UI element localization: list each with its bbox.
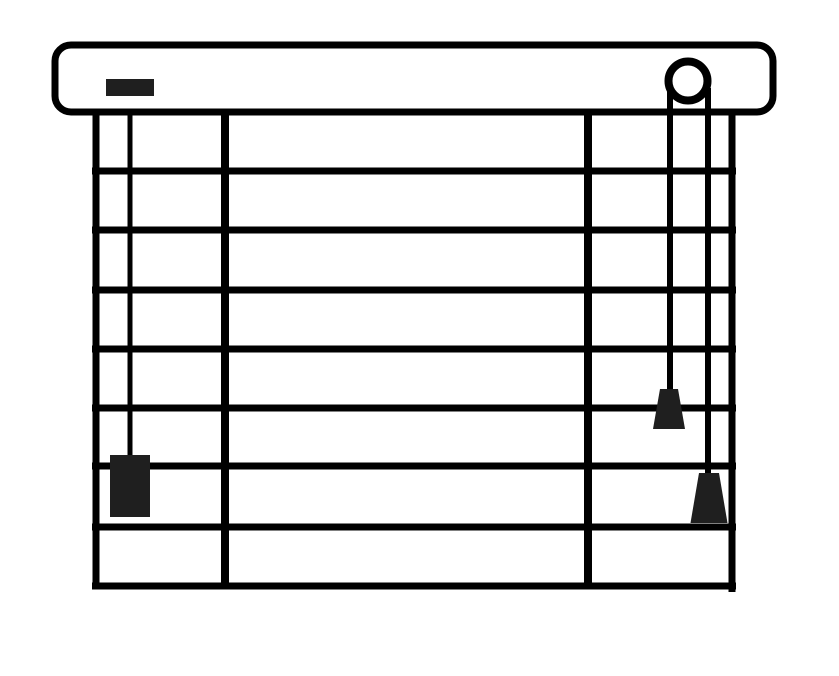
cord-lock-ring <box>669 62 708 101</box>
cord-tassel <box>691 473 728 523</box>
tilt-wand-handle <box>110 455 150 517</box>
brand-label-block <box>106 79 154 96</box>
cord-tassel <box>653 389 685 429</box>
window-blind-drawing-canvas <box>0 0 839 676</box>
window-blind-illustration <box>0 0 839 676</box>
